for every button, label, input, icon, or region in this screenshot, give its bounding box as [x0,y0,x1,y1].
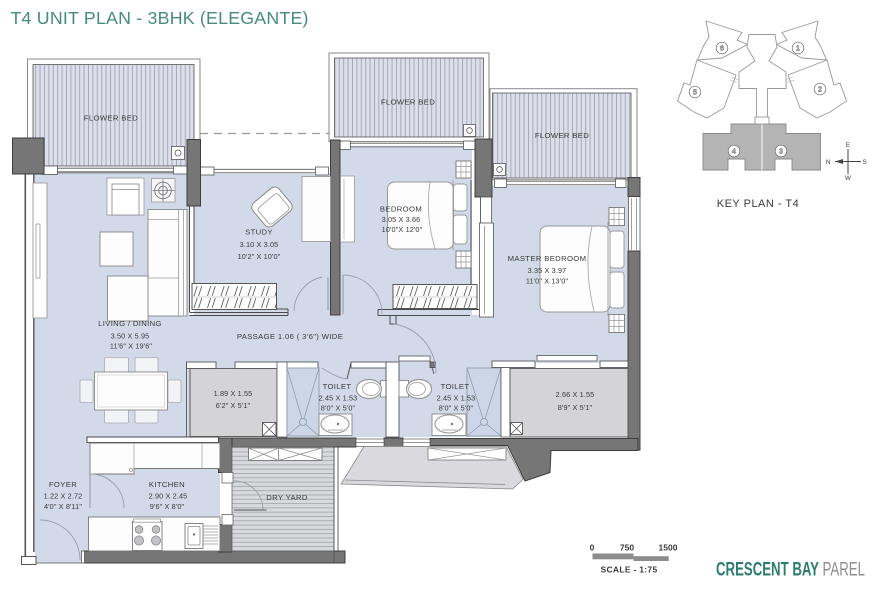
svg-text:DRY YARD: DRY YARD [266,493,308,502]
svg-text:6: 6 [720,46,724,53]
svg-text:LIVING / DINING: LIVING / DINING [98,319,162,328]
svg-text:PAREL: PAREL [823,560,866,581]
svg-text:STUDY: STUDY [245,228,273,237]
svg-text:SCALE - 1:75: SCALE - 1:75 [601,565,658,575]
svg-text:8'0" X 5'0": 8'0" X 5'0" [439,404,474,413]
svg-text:MASTER BEDROOM: MASTER BEDROOM [508,254,587,263]
svg-text:CRESCENT BAY: CRESCENT BAY [716,560,819,581]
svg-text:PASSAGE 1.06 ( 3'6") WIDE: PASSAGE 1.06 ( 3'6") WIDE [237,332,343,341]
svg-text:10'2" X 10'0": 10'2" X 10'0" [238,252,281,261]
svg-text:S: S [863,159,867,166]
svg-text:KEY PLAN - T4: KEY PLAN - T4 [717,198,800,210]
svg-text:2: 2 [818,87,822,94]
svg-text:11'6" X 19'6": 11'6" X 19'6" [110,342,153,351]
svg-text:FLOWER BED: FLOWER BED [535,131,589,140]
svg-text:2.90 X 2.45: 2.90 X 2.45 [149,492,188,501]
svg-text:1.89 X 1.55: 1.89 X 1.55 [214,389,253,398]
svg-text:6'2" X 5'1": 6'2" X 5'1" [216,401,251,410]
svg-text:11'0" X 13'0": 11'0" X 13'0" [526,277,569,286]
svg-text:2.66 X 1.55: 2.66 X 1.55 [556,390,595,399]
svg-text:4: 4 [732,149,736,156]
svg-text:TOILET: TOILET [441,382,470,391]
svg-text:W: W [845,175,851,182]
svg-text:TOILET: TOILET [323,382,352,391]
svg-text:1.22 X 2.72: 1.22 X 2.72 [44,492,83,501]
svg-text:750: 750 [620,543,634,553]
svg-text:3.35 X 3.97: 3.35 X 3.97 [528,266,567,275]
svg-text:10'0"X 12'0": 10'0"X 12'0" [382,225,423,234]
svg-text:9'6" X 8'0": 9'6" X 8'0" [150,502,185,511]
svg-text:1500: 1500 [659,543,678,553]
svg-text:3.50 X 5.95: 3.50 X 5.95 [111,332,150,341]
svg-text:3: 3 [779,149,783,156]
svg-text:1: 1 [796,46,800,53]
svg-text:8'0" X 5'0": 8'0" X 5'0" [321,404,356,413]
svg-text:FLOWER BED: FLOWER BED [381,98,435,107]
svg-text:2.45 X 1.53: 2.45 X 1.53 [437,394,476,403]
svg-text:FLOWER BED: FLOWER BED [84,114,138,123]
svg-text:4'0" X 8'11": 4'0" X 8'11" [44,502,82,511]
svg-text:BEDROOM: BEDROOM [380,205,422,214]
svg-text:N: N [826,159,831,166]
svg-text:3.05 X 3.66: 3.05 X 3.66 [382,215,421,224]
svg-text:2.45 X 1.53: 2.45 X 1.53 [319,394,358,403]
svg-text:FOYER: FOYER [49,480,77,489]
svg-text:0: 0 [590,543,595,553]
svg-text:KITCHEN: KITCHEN [149,480,185,489]
svg-text:5: 5 [693,90,697,97]
svg-text:T4 UNIT PLAN - 3BHK (ELEGANTE): T4 UNIT PLAN - 3BHK (ELEGANTE) [11,8,309,28]
svg-text:E: E [846,142,850,149]
svg-text:3.10 X 3.05: 3.10 X 3.05 [240,240,279,249]
svg-text:8'9" X 5'1": 8'9" X 5'1" [558,403,593,412]
